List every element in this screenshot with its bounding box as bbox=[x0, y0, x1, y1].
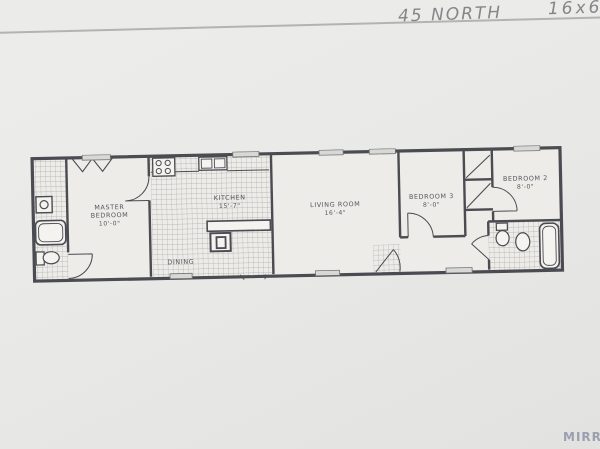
toilet-tank-icon bbox=[496, 223, 507, 230]
toilet-icon bbox=[43, 252, 59, 264]
bathtub-inner bbox=[38, 223, 62, 242]
photographed-floorplan-page: { "page": { "handwriting": { "model_text… bbox=[0, 0, 600, 449]
burner-icon bbox=[165, 168, 170, 173]
master-bedroom-label-line2: BEDROOM bbox=[91, 211, 129, 220]
sink-icon bbox=[516, 233, 530, 251]
dining-label: DINING bbox=[167, 258, 194, 267]
living-room-dimension: 16'-4" bbox=[324, 209, 346, 216]
water-heater-icon bbox=[216, 237, 225, 248]
handwritten-size: 16x66 bbox=[548, 0, 600, 19]
bedroom-3-dimension: 8'-0" bbox=[423, 201, 440, 208]
footer-partial-text: MIRRO bbox=[563, 430, 600, 444]
bedroom-2-label: BEDROOM 2 bbox=[503, 174, 548, 183]
master-bedroom-dimension: 10'-0" bbox=[99, 220, 121, 227]
floor-plan-drawing: MASTER BEDROOM 10'-0" KITCHEN 15'-7" DIN… bbox=[30, 145, 565, 284]
window bbox=[233, 151, 259, 157]
kitchen-label: KITCHEN bbox=[214, 193, 246, 202]
floor-plan: MASTER BEDROOM 10'-0" KITCHEN 15'-7" DIN… bbox=[30, 145, 565, 284]
window bbox=[446, 267, 472, 273]
bedroom-3-label: BEDROOM 3 bbox=[409, 192, 454, 201]
sink-basin-left bbox=[201, 159, 212, 168]
kitchen-dimension: 15'-7" bbox=[219, 203, 241, 210]
window bbox=[82, 155, 110, 161]
bedroom-2-dimension: 8'-0" bbox=[517, 183, 534, 190]
range-icon bbox=[153, 158, 175, 177]
bathtub-inner bbox=[543, 226, 557, 265]
living-room-label: LIVING ROOM bbox=[310, 200, 360, 209]
sink-basin-right bbox=[214, 159, 225, 168]
sink-basin-icon bbox=[40, 201, 48, 209]
burner-icon bbox=[156, 168, 161, 173]
burner-icon bbox=[156, 160, 161, 165]
toilet-icon bbox=[496, 231, 509, 246]
burner-icon bbox=[165, 160, 170, 165]
window bbox=[170, 273, 192, 278]
window bbox=[514, 146, 540, 152]
handwritten-model: 45 NORTH bbox=[398, 3, 503, 27]
wall-bedroom2-bath2 bbox=[488, 220, 561, 222]
window bbox=[319, 150, 343, 156]
window bbox=[369, 149, 395, 155]
window bbox=[316, 270, 340, 276]
kitchen-bar-counter bbox=[207, 220, 270, 231]
